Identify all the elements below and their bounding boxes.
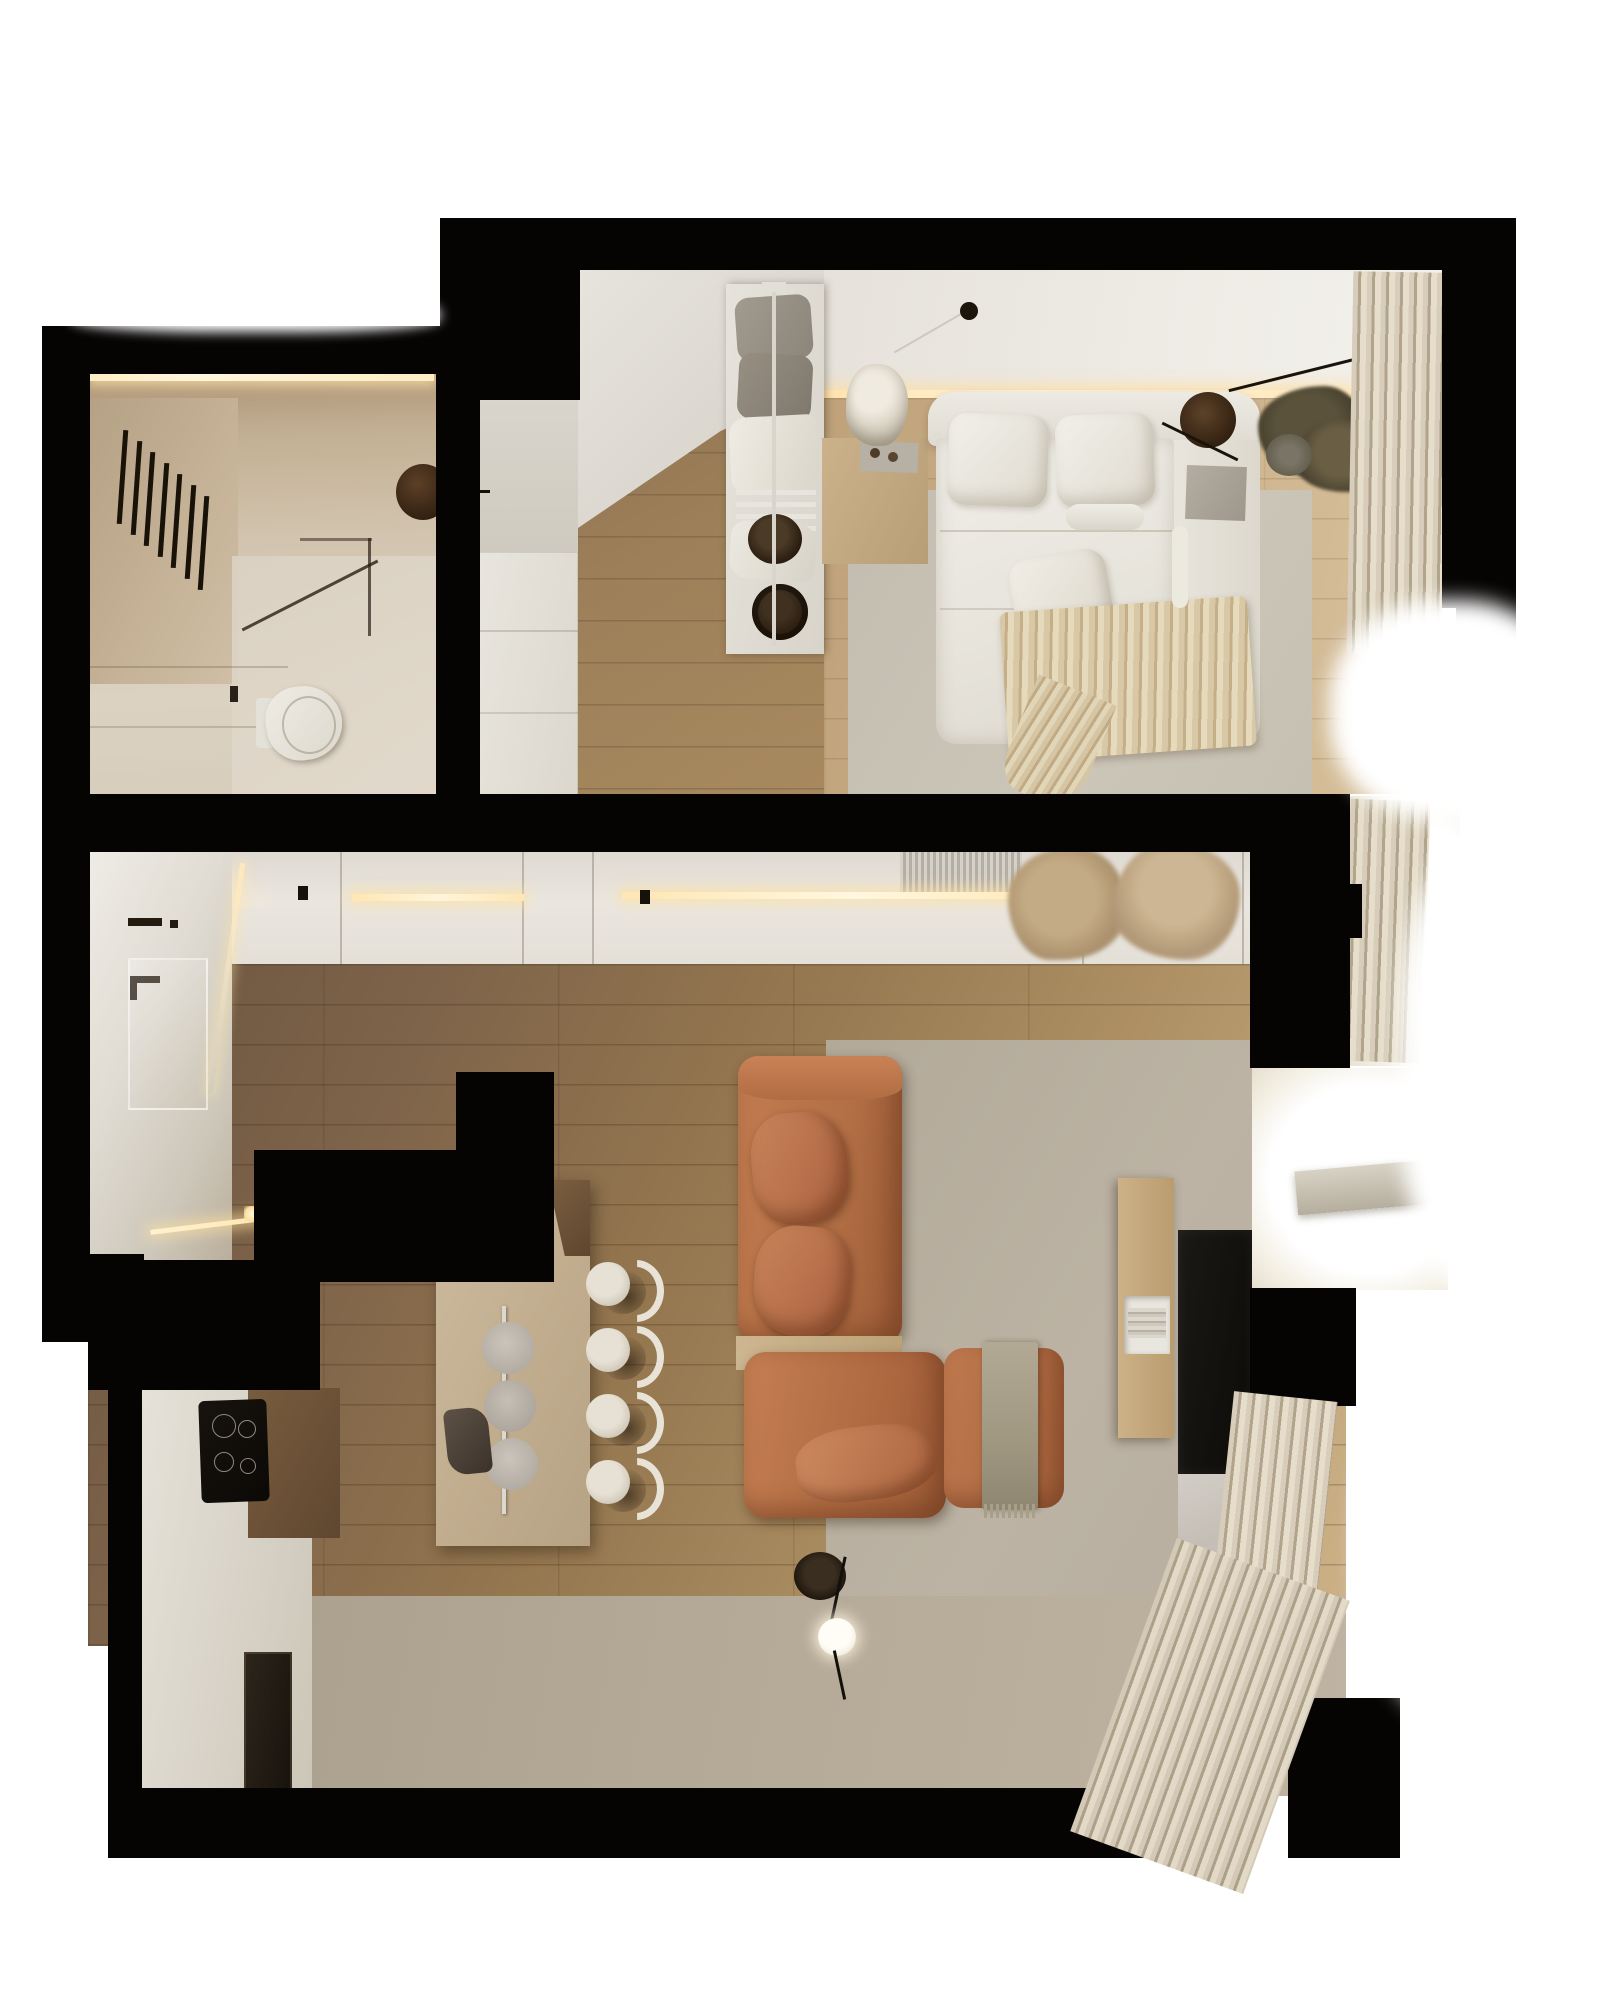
stool-2-seat: [586, 1328, 630, 1372]
wall-bedroom-right: [1442, 218, 1516, 608]
wall-left-lower: [108, 1336, 142, 1858]
pendant-tip: [960, 302, 978, 320]
wall-lamp-disc: [1180, 392, 1236, 448]
wall-bath-right: [436, 326, 480, 798]
stool-1-seat: [586, 1262, 630, 1306]
shower-glass-top: [300, 538, 372, 541]
pendant-knit-ball: [846, 364, 908, 446]
hob-ring-2: [238, 1420, 256, 1438]
bathroom-floor-tile: [232, 556, 436, 796]
sofa-cushion-2: [750, 1223, 853, 1339]
island-decor-disc-1: [482, 1322, 534, 1374]
ceiling-seam-2: [522, 850, 524, 964]
wall-bottom-band: [108, 1788, 1152, 1858]
ceiling-seam-1: [340, 850, 342, 964]
wall-right-block-b: [1250, 1288, 1356, 1406]
floorplan-render-canvas: [0, 0, 1600, 2000]
curtain-bedroom-right: [1347, 271, 1448, 655]
wall-divider: [42, 794, 1348, 852]
light-bleed-bottom-right: [1360, 1360, 1580, 1720]
kitchen-handle: [128, 918, 162, 926]
sprinkler-2: [640, 890, 650, 904]
floor-lamp-shade: [818, 1618, 856, 1656]
chaise-throw-fringe: [984, 1504, 1036, 1518]
island-decor-disc-3: [486, 1438, 538, 1490]
sprinkler-1: [298, 886, 308, 900]
console-books: [1128, 1308, 1166, 1338]
wall-top-band: [440, 218, 1516, 270]
wall-island-block: [456, 1072, 554, 1282]
wall-bath-top: [42, 326, 478, 374]
wardrobe-pole: [772, 288, 776, 646]
shower-glass-side: [368, 538, 371, 636]
hob-ring-3: [214, 1452, 234, 1472]
hob: [198, 1399, 270, 1503]
light-bleed-top-gap: [70, 298, 440, 332]
hob-ring-4: [240, 1458, 256, 1474]
wardrobe-bracket: [762, 282, 786, 292]
bed-roll-cushion: [1172, 526, 1188, 608]
wall-right-block-a: [1250, 794, 1350, 1068]
cup-1: [870, 448, 880, 458]
hallway-dresser: [474, 552, 578, 796]
oven: [244, 1652, 292, 1792]
dresser-seam-1: [474, 630, 578, 632]
hallway-wall-face: [474, 398, 578, 556]
bathroom-panel-seam-2: [88, 726, 280, 728]
island-sink-tap: [443, 1406, 494, 1476]
sheet-fold-1: [940, 530, 1172, 532]
kitchen-handle-dot: [170, 920, 178, 928]
bathroom-panel-seam-1: [88, 666, 288, 668]
ceiling-seam-3: [592, 850, 594, 964]
island-decor-disc-2: [484, 1380, 536, 1432]
light-bleed-bedroom-right: [1330, 600, 1570, 820]
bedroom-plant-pot: [1266, 434, 1312, 476]
dried-plant-1: [1008, 848, 1126, 960]
sofa-armrest-top: [738, 1056, 902, 1100]
kitchen-inset-panel: [128, 958, 208, 1110]
hob-ring-1: [212, 1414, 236, 1438]
cup-2: [888, 452, 898, 462]
wardrobe-hat-2: [752, 584, 808, 640]
chaise-throw: [982, 1342, 1038, 1510]
bedroom-ceiling: [824, 266, 1442, 400]
bed-pillow-2: [1054, 412, 1155, 507]
dried-plant-2: [1112, 842, 1240, 960]
wall-stub-right: [1344, 884, 1362, 938]
bench-tray: [1185, 465, 1247, 521]
dresser-seam-2: [474, 712, 578, 714]
led-strip-1: [352, 894, 524, 901]
ceiling-seam-5: [1242, 850, 1244, 964]
stool-3-seat: [586, 1394, 630, 1438]
light-bleed-living-right: [1400, 830, 1600, 1300]
stool-4-seat: [586, 1460, 630, 1504]
bed-bolster: [1066, 504, 1144, 530]
bath-switch: [230, 686, 238, 702]
wall-island-arm: [254, 1150, 458, 1282]
bed-pillow-1: [946, 412, 1049, 507]
